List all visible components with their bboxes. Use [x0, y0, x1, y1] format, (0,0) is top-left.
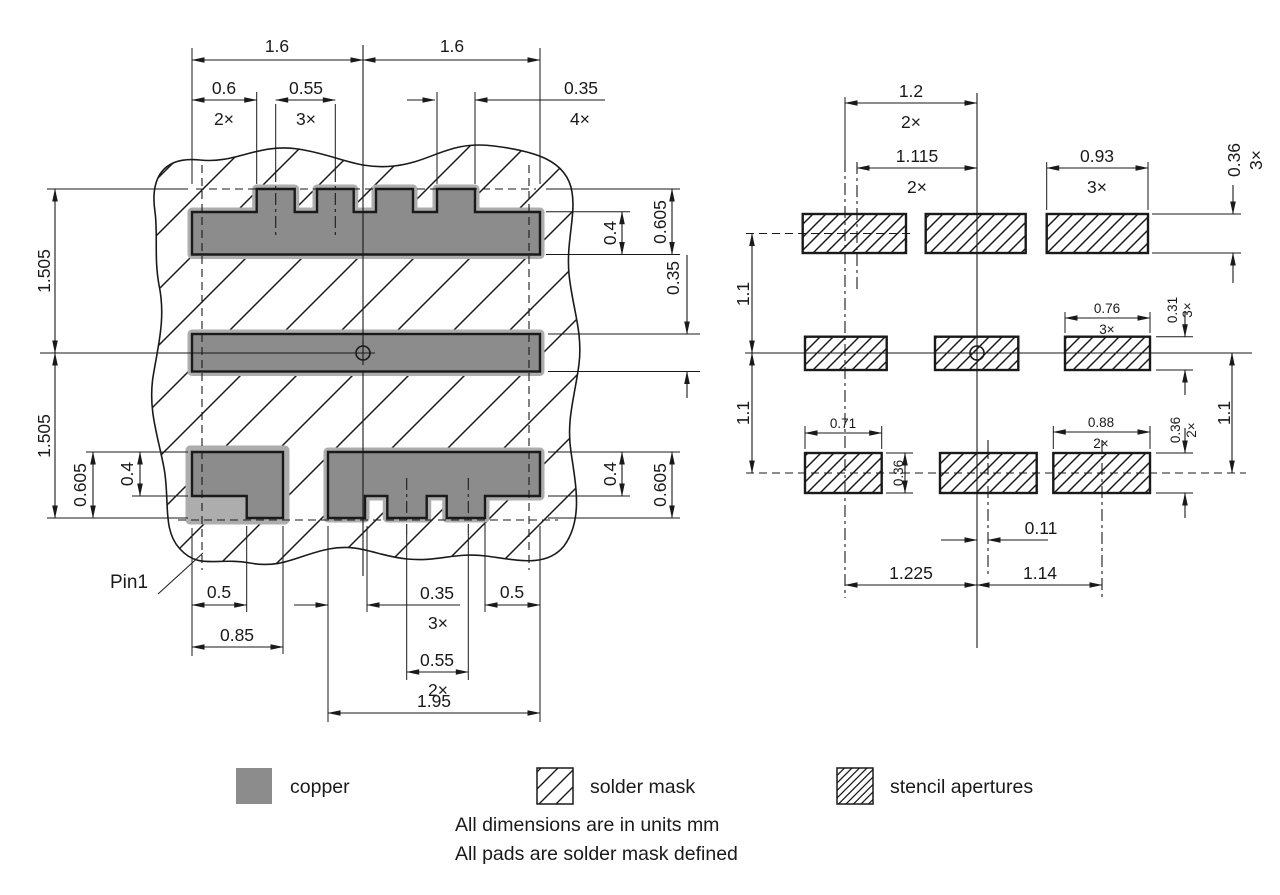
- dim-label: 0.35: [420, 583, 454, 603]
- dim-label: 0.76: [1094, 301, 1120, 316]
- dim-label: 0.35: [564, 78, 598, 98]
- legend: copper solder mask stencil apertures: [236, 768, 1033, 804]
- dim-label: 0.11: [1025, 518, 1058, 538]
- copper-figure: 1.6 1.6 0.6 2× 0.55 3× 0.35 4× 1.505 1.5…: [34, 36, 700, 722]
- dim-label: 0.5: [500, 582, 524, 602]
- dim-label: 0.605: [650, 200, 670, 244]
- dim-label: 0.35: [663, 261, 683, 295]
- copper-swatch: [236, 768, 272, 804]
- dim-label: 1.95: [417, 691, 451, 711]
- dim-count: 4×: [570, 109, 590, 129]
- legend-item-solder-mask: solder mask: [537, 768, 695, 804]
- dim-label: 0.71: [830, 416, 856, 431]
- dim-label: 0.6: [212, 78, 236, 98]
- dim-label: 0.36: [1168, 417, 1183, 443]
- dim-count: 2×: [901, 112, 921, 132]
- dim-label: 0.605: [70, 463, 90, 507]
- stencil-figure: 1.2 2× 1.115 2× 0.93 3× 0.36 3× 1.1 1.1 …: [733, 81, 1266, 648]
- legend-label: solder mask: [590, 776, 695, 798]
- legend-label: stencil apertures: [890, 776, 1033, 798]
- mask-defined-note: All pads are solder mask defined: [455, 843, 738, 865]
- dim-label: 0.85: [220, 625, 254, 645]
- dim-count: 3×: [1087, 177, 1107, 197]
- solder-mask-swatch: [537, 768, 573, 804]
- legend-item-copper: copper: [236, 768, 350, 804]
- dim-count: 3×: [428, 613, 448, 633]
- dimension-labels-right: 1.2 2× 1.115 2× 0.93 3× 0.36 3× 1.1 1.1 …: [733, 81, 1266, 583]
- dim-label: 0.31: [1165, 297, 1180, 323]
- dim-label: 0.93: [1080, 146, 1114, 166]
- dim-label: 0.4: [600, 221, 620, 246]
- dim-count: 3×: [1246, 150, 1266, 170]
- dim-count: 3×: [1099, 322, 1114, 337]
- notes: All dimensions are in units mm All pads …: [455, 814, 738, 865]
- legend-item-stencil: stencil apertures: [837, 768, 1033, 804]
- dim-label: 0.36: [891, 460, 906, 486]
- dim-label: 0.5: [207, 582, 231, 602]
- pin1-label: Pin1: [110, 572, 148, 593]
- legend-label: copper: [290, 776, 350, 798]
- aperture-top-right: [1047, 214, 1148, 253]
- dim-label: 1.225: [889, 563, 933, 583]
- dim-label: 1.505: [34, 414, 54, 458]
- dim-label: 0.605: [650, 463, 670, 507]
- dim-label: 0.36: [1224, 143, 1244, 177]
- dim-label: 0.88: [1088, 415, 1114, 430]
- pin1-leader: [158, 553, 203, 594]
- dim-count: 2×: [214, 109, 234, 129]
- dim-count: 2×: [1184, 422, 1199, 437]
- dim-label: 1.6: [265, 36, 289, 56]
- dim-label: 1.1: [733, 282, 753, 306]
- dim-label: 0.4: [117, 462, 137, 487]
- units-note: All dimensions are in units mm: [455, 814, 719, 836]
- dim-label: 1.115: [896, 146, 939, 166]
- stencil-swatch: [837, 768, 873, 804]
- dim-label: 1.505: [34, 249, 54, 293]
- aperture-top-center: [926, 214, 1026, 253]
- dim-label: 1.6: [440, 36, 464, 56]
- dim-label: 1.2: [899, 81, 923, 101]
- dim-label: 1.1: [733, 401, 753, 425]
- dim-label: 0.4: [600, 462, 620, 487]
- dim-label: 0.55: [289, 78, 323, 98]
- dim-label: 1.14: [1023, 563, 1057, 583]
- dim-label: 1.1: [1214, 401, 1234, 425]
- dim-count: 3×: [1180, 302, 1195, 317]
- dim-count: 2×: [1093, 436, 1108, 451]
- dim-count: 3×: [296, 109, 316, 129]
- drawing-canvas: 1.6 1.6 0.6 2× 0.55 3× 0.35 4× 1.505 1.5…: [0, 0, 1280, 895]
- dim-label: 0.55: [420, 650, 454, 670]
- dim-count: 2×: [907, 177, 927, 197]
- land-pattern-drawing: 1.6 1.6 0.6 2× 0.55 3× 0.35 4× 1.505 1.5…: [0, 0, 1280, 895]
